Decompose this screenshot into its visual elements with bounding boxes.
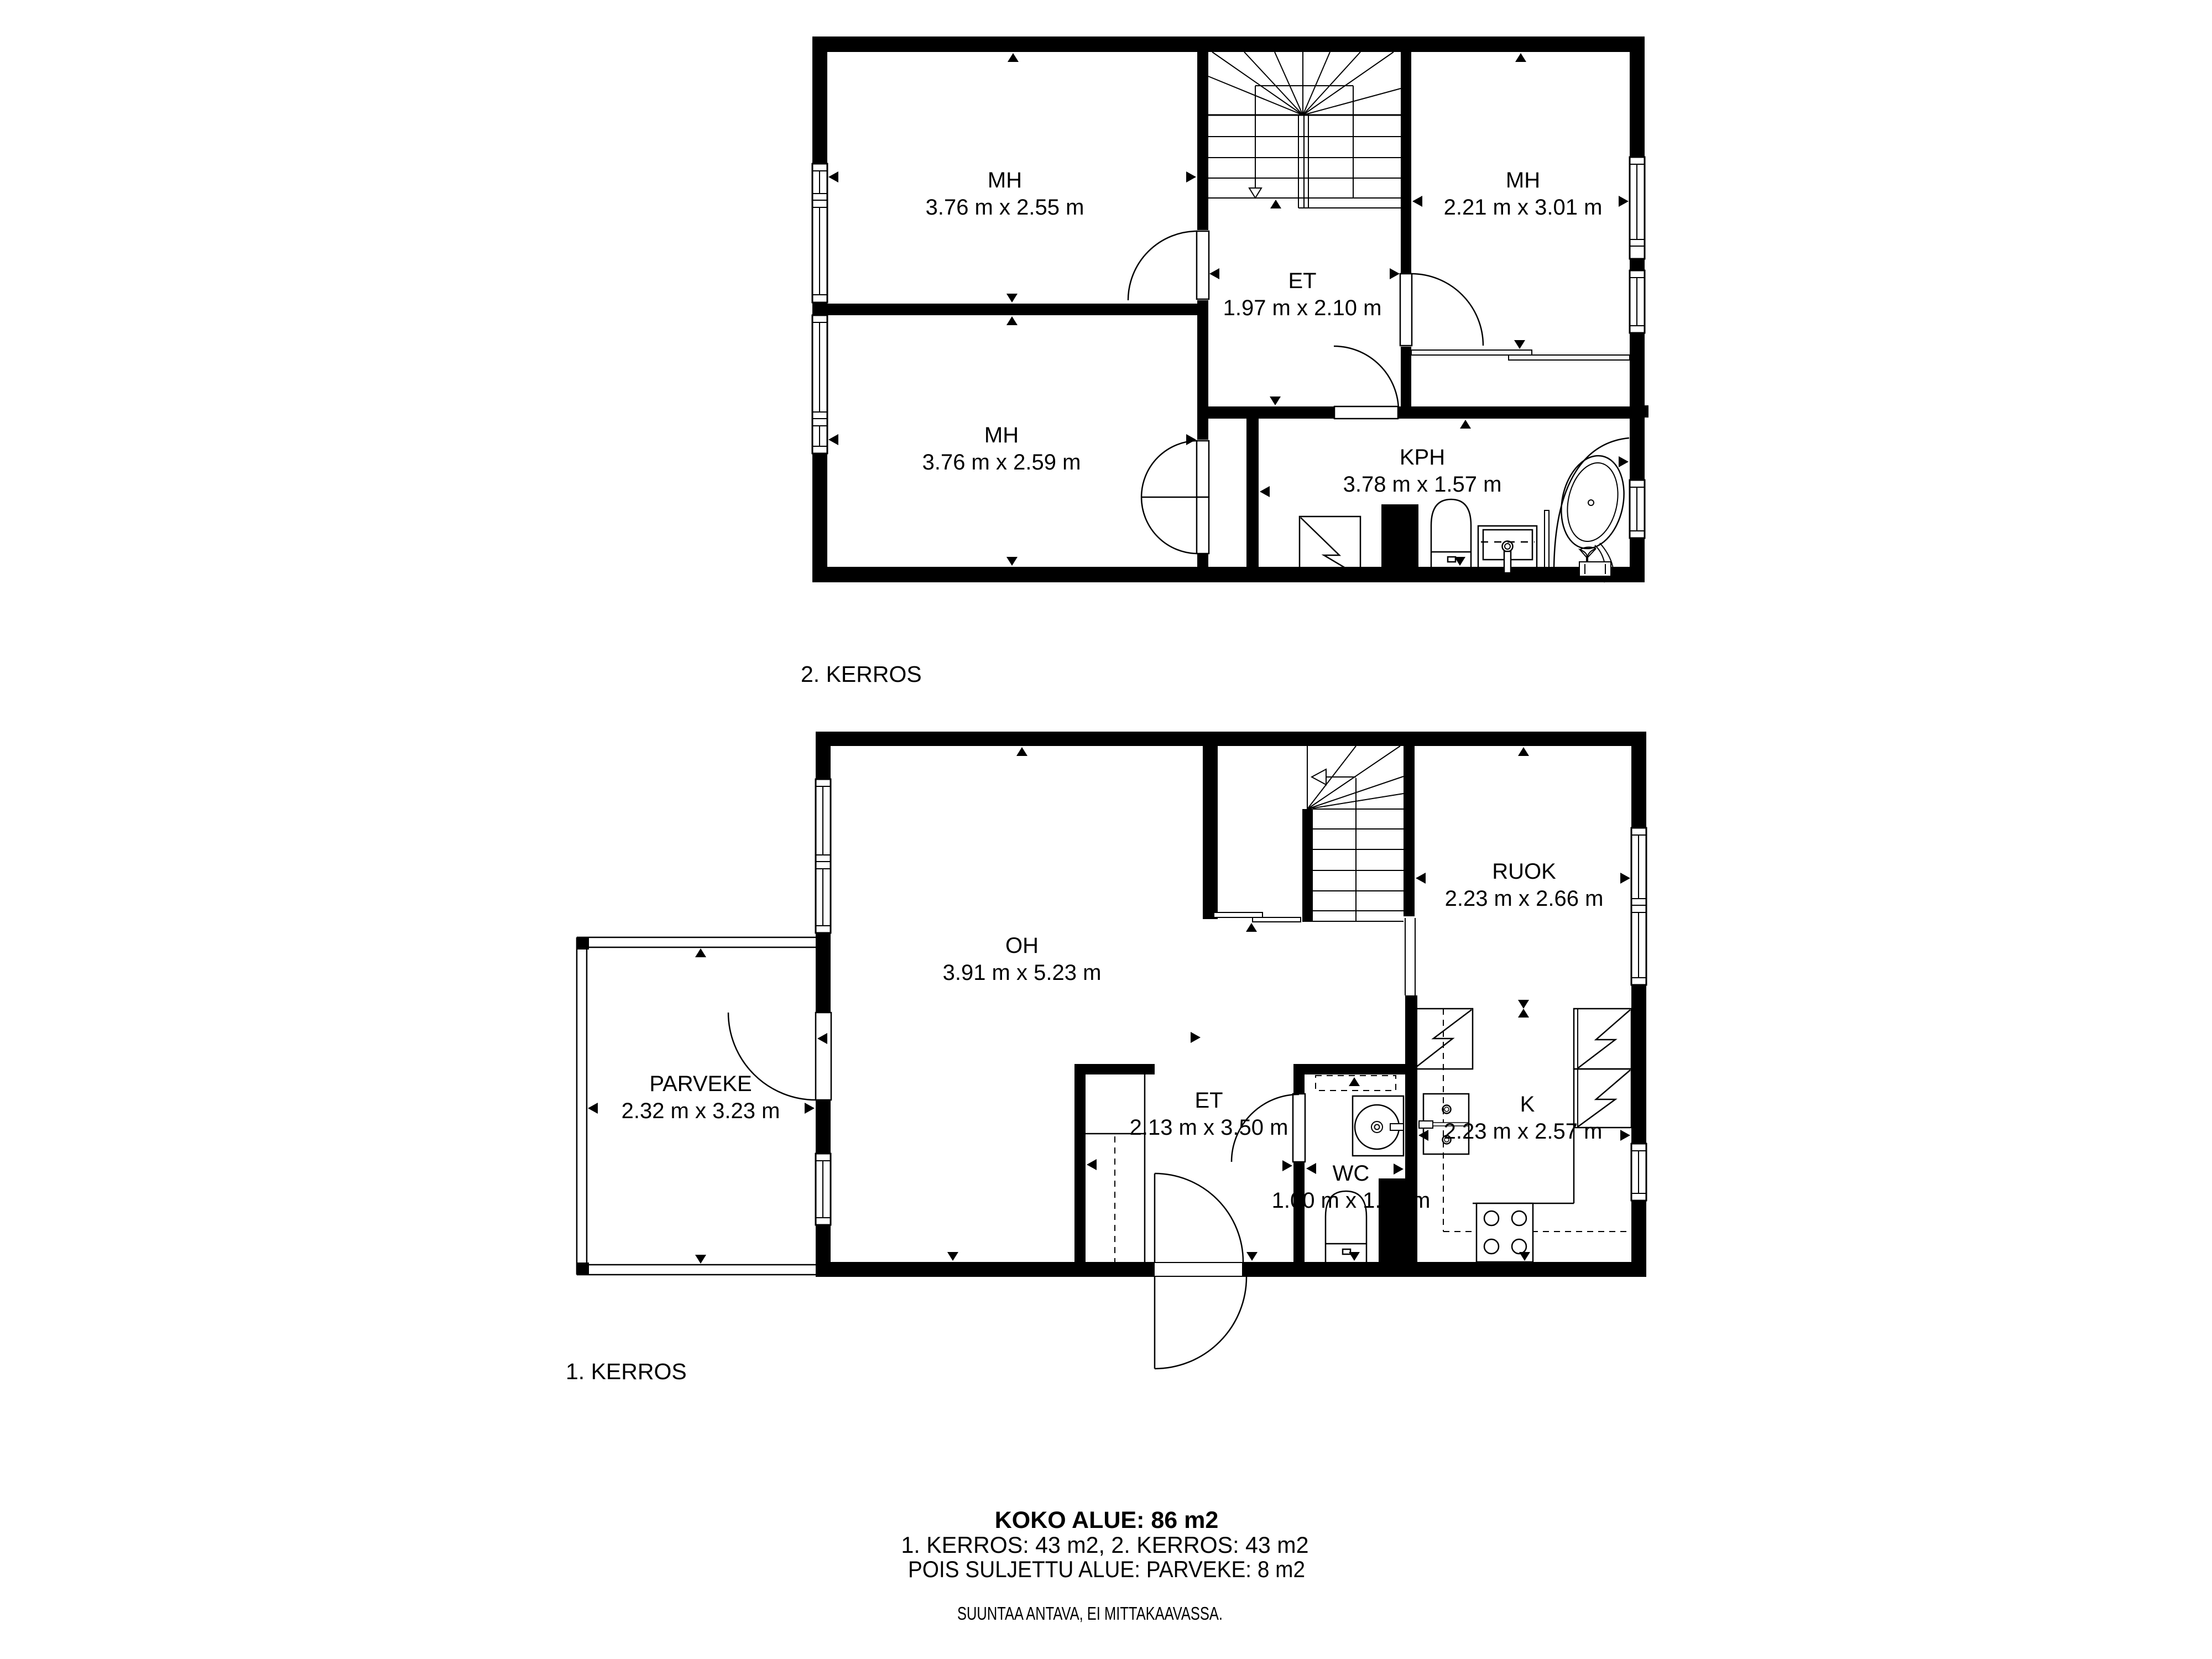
- svg-text:SUUNTAA ANTAVA, EI MITTAKAAVAS: SUUNTAA ANTAVA, EI MITTAKAAVASSA.: [957, 1603, 1223, 1624]
- svg-text:K: K: [1520, 1092, 1535, 1117]
- svg-text:1.00 m x 1.57 m: 1.00 m x 1.57 m: [1272, 1188, 1431, 1213]
- svg-text:OH: OH: [1005, 933, 1039, 958]
- svg-text:KOKO ALUE: 86 m2: KOKO ALUE: 86 m2: [995, 1507, 1219, 1533]
- svg-text:2.23 m x 2.66 m: 2.23 m x 2.66 m: [1445, 886, 1604, 911]
- svg-text:MH: MH: [988, 168, 1022, 192]
- svg-text:2.32 m x 3.23 m: 2.32 m x 3.23 m: [622, 1099, 780, 1123]
- svg-text:ET: ET: [1194, 1088, 1223, 1113]
- svg-text:WC: WC: [1333, 1161, 1370, 1186]
- svg-text:MH: MH: [984, 423, 1019, 447]
- svg-text:MH: MH: [1506, 168, 1540, 192]
- svg-text:3.76 m x 2.59 m: 3.76 m x 2.59 m: [922, 450, 1081, 474]
- svg-text:KPH: KPH: [1400, 445, 1445, 469]
- svg-text:POIS SULJETTU ALUE: PARVEKE: 8: POIS SULJETTU ALUE: PARVEKE: 8 m2: [908, 1556, 1305, 1582]
- svg-text:2. KERROS: 2. KERROS: [801, 661, 922, 687]
- svg-text:3.76 m x 2.55 m: 3.76 m x 2.55 m: [926, 195, 1084, 220]
- svg-text:ET: ET: [1288, 269, 1316, 293]
- svg-text:2.21 m x 3.01 m: 2.21 m x 3.01 m: [1444, 195, 1603, 220]
- svg-text:PARVEKE: PARVEKE: [649, 1072, 752, 1096]
- svg-text:3.91 m x 5.23 m: 3.91 m x 5.23 m: [943, 961, 1102, 985]
- svg-text:2.13 m x 3.50 m: 2.13 m x 3.50 m: [1130, 1115, 1288, 1140]
- svg-text:3.78 m x 1.57 m: 3.78 m x 1.57 m: [1343, 472, 1502, 497]
- svg-text:RUOK: RUOK: [1492, 859, 1556, 884]
- svg-text:2.23 m x 2.57 m: 2.23 m x 2.57 m: [1444, 1119, 1603, 1144]
- svg-text:1. KERROS: 1. KERROS: [566, 1359, 687, 1384]
- svg-text:1. KERROS: 43 m2, 2. KERROS: 4: 1. KERROS: 43 m2, 2. KERROS: 43 m2: [901, 1532, 1309, 1558]
- svg-text:1.97 m x 2.10 m: 1.97 m x 2.10 m: [1223, 296, 1382, 320]
